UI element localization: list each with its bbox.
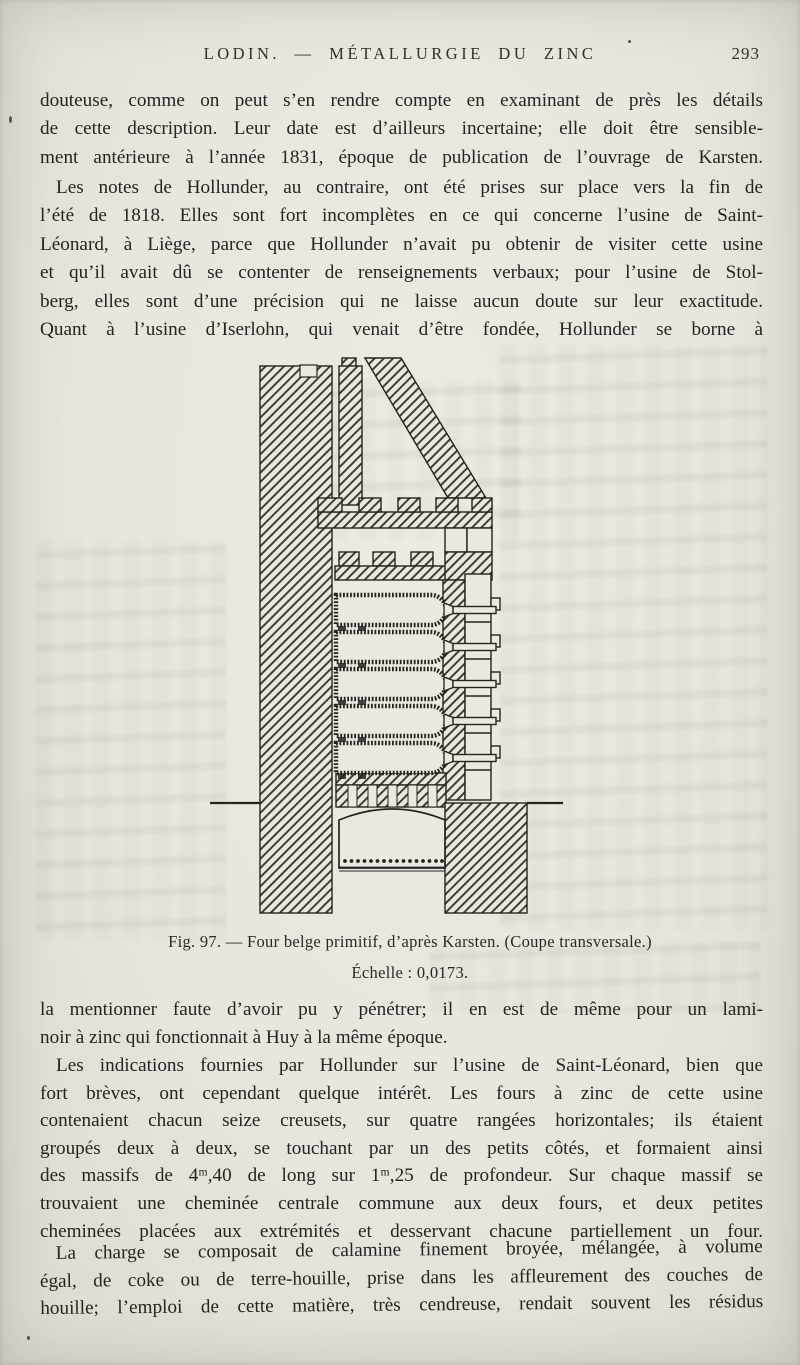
text-line: fort brèves, ont cependant quelque intér… bbox=[40, 1080, 763, 1108]
text-line: la mentionner faute d’avoir pu y pénétre… bbox=[40, 996, 763, 1024]
text-line: trouvaient une cheminée centrale commune… bbox=[40, 1190, 763, 1218]
text-line: Quant à l’usine d’Iserlohn, qui venait d… bbox=[40, 316, 763, 344]
text-line: Les notes de Hollunder, au contraire, on… bbox=[40, 174, 763, 202]
text-line: contenaient chacun seize creusets, sur q… bbox=[40, 1107, 763, 1135]
text-line: groupés deux à deux, se touchant par un … bbox=[40, 1135, 763, 1163]
page-number: 293 bbox=[732, 44, 761, 64]
text-line: douteuse, comme on peut s’en rendre comp… bbox=[40, 87, 763, 115]
scanned-book-page: LODIN. — MÉTALLURGIE DU ZINC 293 douteus… bbox=[0, 0, 800, 1365]
running-header-title: LODIN. — MÉTALLURGIE DU ZINC bbox=[0, 44, 800, 64]
paragraph: Les indications fournies par Hollunder s… bbox=[40, 1052, 763, 1245]
paragraph: la mentionner faute d’avoir pu y pénétre… bbox=[40, 996, 763, 1051]
text-line: de cette description. Leur date est d’ai… bbox=[40, 115, 763, 143]
figure-97-drawing bbox=[205, 352, 605, 927]
bleed-through-texture bbox=[36, 540, 226, 940]
figure-97 bbox=[205, 352, 605, 927]
text-line: l’été de 1818. Elles sont fort incomplèt… bbox=[40, 202, 763, 230]
text-line: berg, elles sont d’une précision qui ne … bbox=[40, 288, 763, 316]
text-line: Les indications fournies par Hollunder s… bbox=[40, 1052, 763, 1080]
scan-speck bbox=[27, 1336, 30, 1340]
figure-caption: Fig. 97. — Four belge primitif, d’après … bbox=[60, 932, 760, 952]
scan-speck bbox=[9, 116, 12, 123]
text-line: et qu’il avait dû se contenter de rensei… bbox=[40, 259, 763, 287]
text-line: des massifs de 4ᵐ,40 de long sur 1ᵐ,25 d… bbox=[40, 1162, 763, 1190]
paragraph: douteuse, comme on peut s’en rendre comp… bbox=[40, 87, 763, 172]
text-line: ment antérieure à l’année 1831, époque d… bbox=[40, 144, 763, 172]
firebox bbox=[339, 809, 445, 871]
paragraph: La charge se composait de calamine finem… bbox=[40, 1233, 764, 1323]
paragraph: Les notes de Hollunder, au contraire, on… bbox=[40, 174, 763, 344]
text-line: noir à zinc qui fonctionnait à Huy à la … bbox=[40, 1024, 763, 1052]
scan-speck bbox=[628, 40, 631, 43]
figure-scale: Échelle : 0,0173. bbox=[60, 963, 760, 983]
text-line: houille; l’emploi de cette matière, très… bbox=[40, 1288, 763, 1323]
text-line: Léonard, à Liège, parce que Hollunder n’… bbox=[40, 231, 763, 259]
